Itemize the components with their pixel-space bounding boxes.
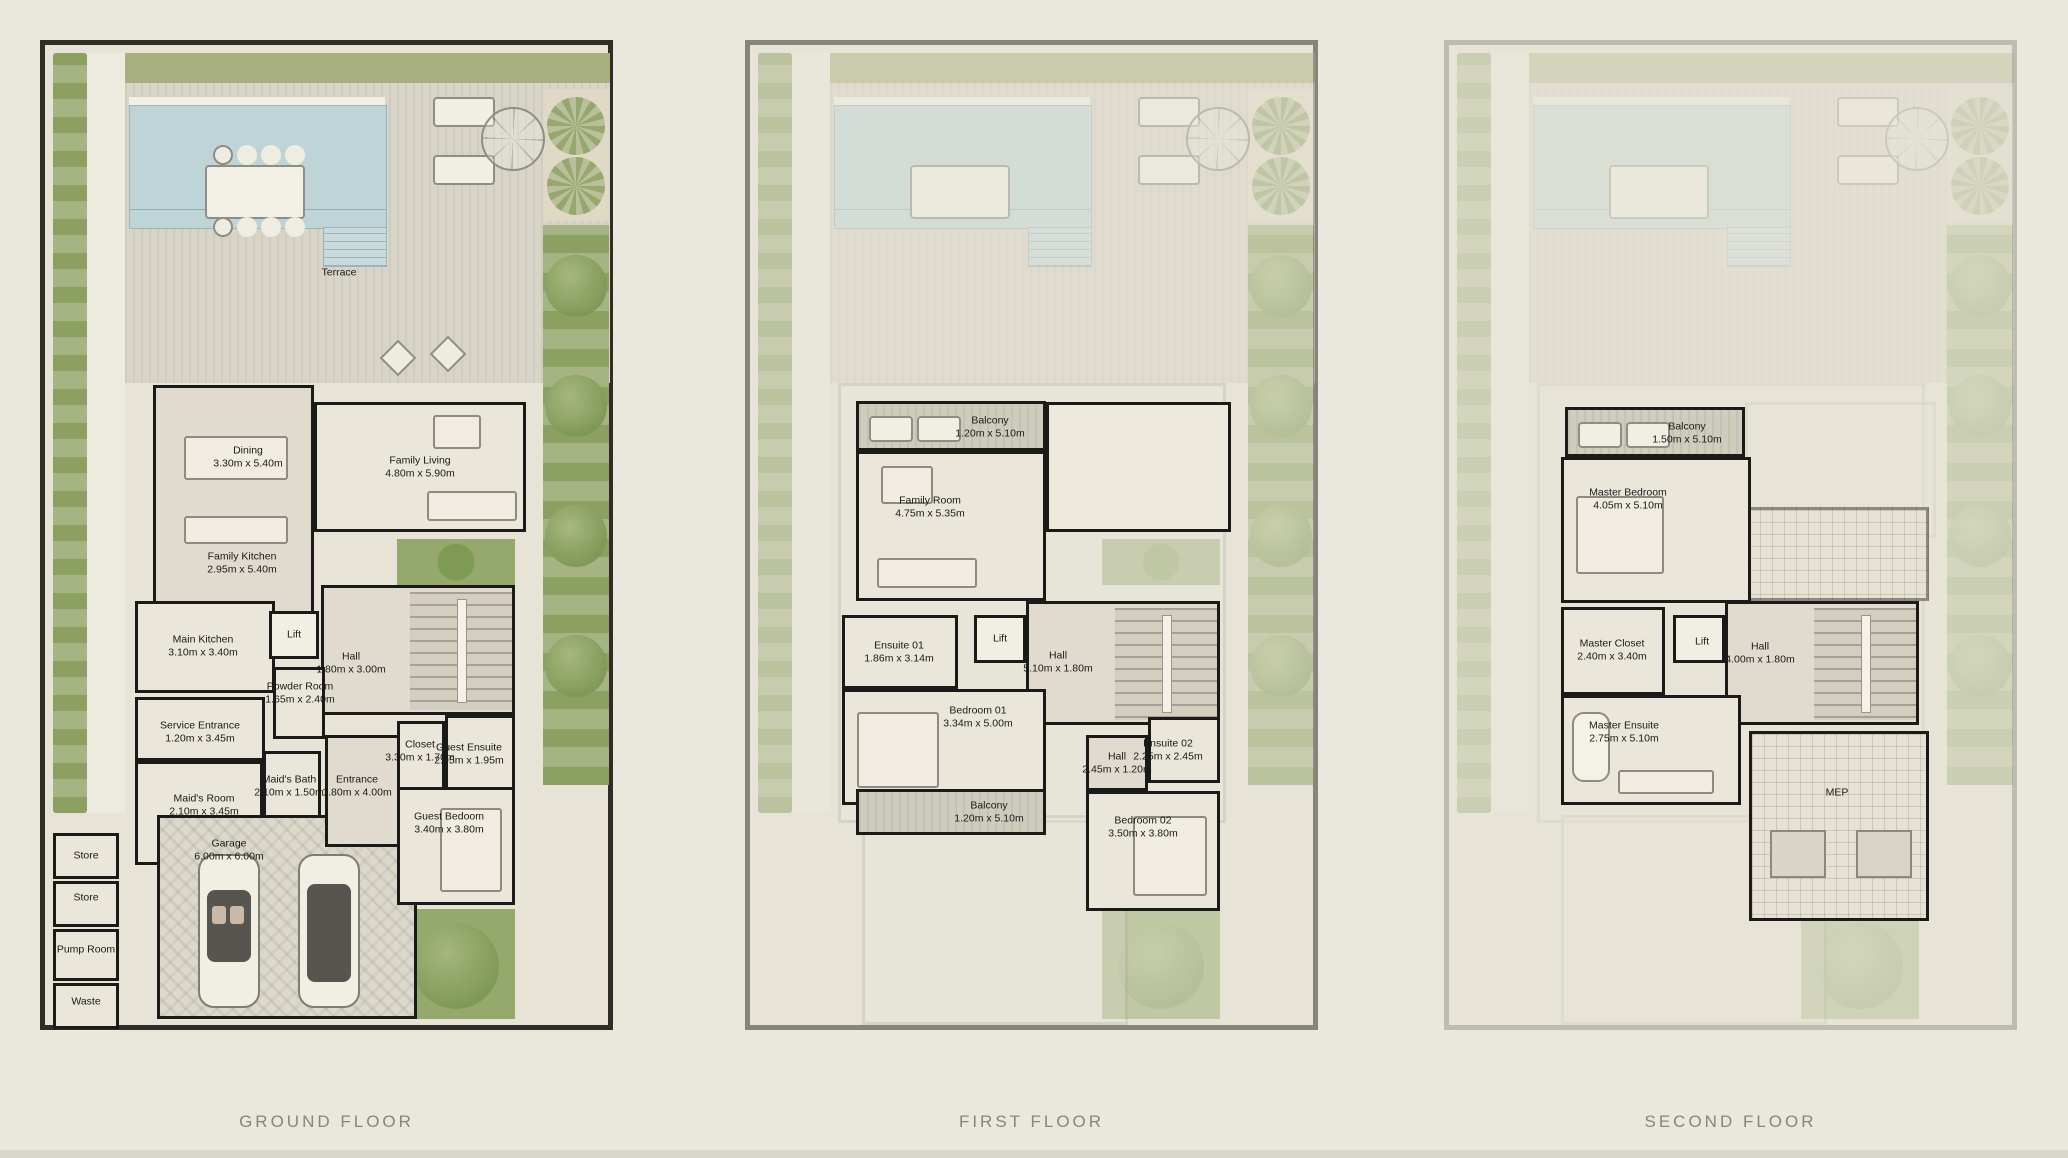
room-bedroom-01 xyxy=(842,689,1046,805)
room-main-kitchen xyxy=(135,601,275,693)
car-convertible-icon xyxy=(198,854,260,1008)
room-lift xyxy=(974,615,1026,663)
floor-plan-ground: TerraceDining3.30m x 5.40mFamily Living4… xyxy=(40,40,613,1030)
room-family-room xyxy=(856,451,1046,601)
room-hall-stairs xyxy=(321,585,515,715)
room-hall-stairs xyxy=(1725,601,1919,725)
bed-icon xyxy=(1133,816,1207,896)
balcony-bottom xyxy=(856,789,1046,835)
sun-lounger xyxy=(869,416,913,442)
house-first xyxy=(750,45,1313,1025)
room-ensuite-01 xyxy=(842,615,958,689)
vanity-icon xyxy=(1618,770,1714,794)
sun-lounger xyxy=(1578,422,1622,448)
room-ensuite-02 xyxy=(1148,717,1220,783)
room-lift xyxy=(1673,615,1725,663)
title-ground-floor: GROUND FLOOR xyxy=(40,1112,613,1132)
house-second xyxy=(1449,45,2012,1025)
bed-icon xyxy=(857,712,939,788)
bed-icon xyxy=(440,808,502,892)
open-roof xyxy=(1745,507,1929,601)
sun-lounger xyxy=(1626,422,1670,448)
bottom-strip xyxy=(0,1150,2068,1158)
balcony-top xyxy=(1565,407,1745,457)
kitchen-island-icon xyxy=(184,516,288,544)
armchair-icon xyxy=(433,415,481,449)
room-master-closet xyxy=(1561,607,1665,695)
dining-table-icon xyxy=(184,436,288,480)
title-first-floor: FIRST FLOOR xyxy=(745,1112,1318,1132)
room-guest-bedroom xyxy=(397,787,515,905)
floor-plan-second: Balcony1.50m x 5.10mMaster Bedroom4.05m … xyxy=(1444,40,2017,1030)
ac-unit-icon xyxy=(1770,830,1826,878)
sun-lounger xyxy=(917,416,961,442)
ac-unit-icon xyxy=(1856,830,1912,878)
room-lift xyxy=(269,611,319,659)
balcony-top xyxy=(856,401,1046,451)
room-family-living xyxy=(314,402,526,532)
title-second-floor: SECOND FLOOR xyxy=(1444,1112,2017,1132)
sofa-icon xyxy=(427,491,517,521)
stairs xyxy=(1115,608,1217,720)
room-mep xyxy=(1749,731,1929,921)
room-store-2 xyxy=(53,881,119,927)
room-master-ensuite xyxy=(1561,695,1741,805)
room-master-bedroom xyxy=(1561,457,1751,603)
stairs xyxy=(1814,608,1916,720)
room-service-entrance xyxy=(135,697,265,761)
room-hall-2 xyxy=(1086,735,1148,791)
house-ground xyxy=(45,45,608,1025)
stairs xyxy=(410,592,512,710)
room-hall-stairs xyxy=(1026,601,1220,725)
room-store-1 xyxy=(53,833,119,879)
sofa-icon xyxy=(877,558,977,588)
room-void-over-living xyxy=(1046,402,1231,532)
bed-sofa-icon xyxy=(881,466,933,504)
bathtub-icon xyxy=(1572,712,1610,782)
room-bedroom-02 xyxy=(1086,791,1220,911)
room-dining-family-kitchen xyxy=(153,385,314,615)
room-waste xyxy=(53,983,119,1029)
car-sedan-icon xyxy=(298,854,360,1008)
room-pump xyxy=(53,929,119,981)
room-powder xyxy=(273,667,325,739)
bed-icon xyxy=(1576,496,1664,574)
floor-plan-first: Balcony1.20m x 5.10mFamily Room4.75m x 5… xyxy=(745,40,1318,1030)
